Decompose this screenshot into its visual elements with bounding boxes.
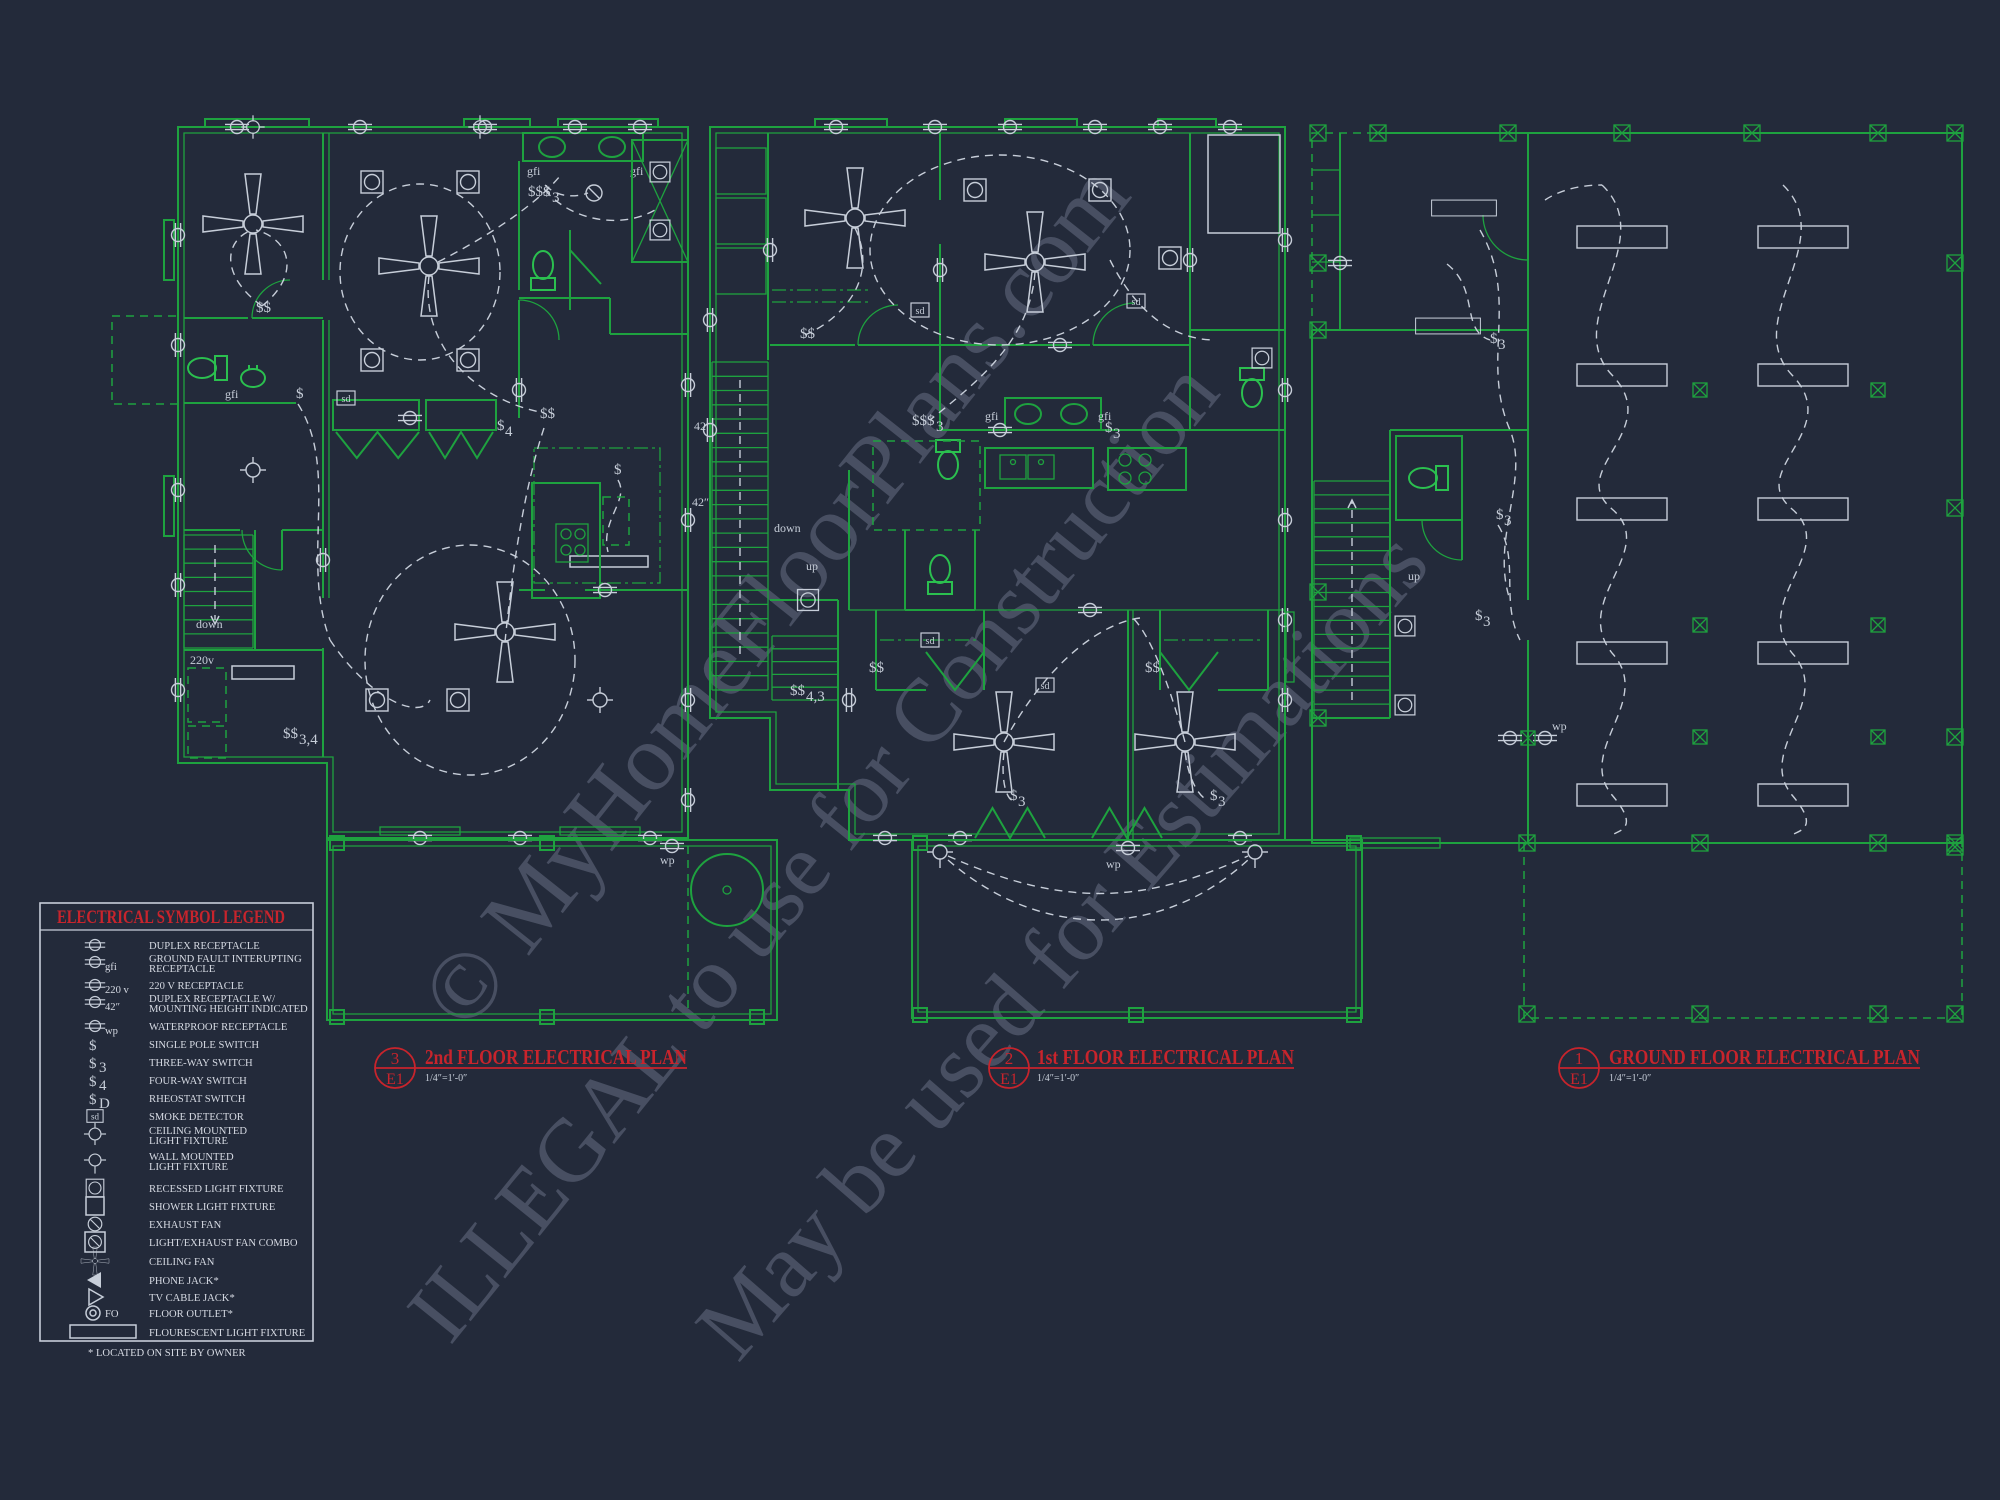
svg-text:E1: E1 <box>1570 1071 1588 1088</box>
svg-text:FLOURESCENT LIGHT FIXTURE: FLOURESCENT LIGHT FIXTURE <box>149 1328 305 1339</box>
svg-text:2nd FLOOR ELECTRICAL PLAN: 2nd FLOOR ELECTRICAL PLAN <box>425 1045 687 1069</box>
svg-text:LIGHT FIXTURE: LIGHT FIXTURE <box>149 1162 228 1173</box>
svg-text:$: $ <box>614 462 622 478</box>
svg-text:wp: wp <box>1552 719 1567 733</box>
svg-text:$: $ <box>89 1092 97 1108</box>
svg-text:E1: E1 <box>386 1071 404 1088</box>
svg-text:1/4″=1′-0″: 1/4″=1′-0″ <box>425 1073 467 1084</box>
svg-text:$: $ <box>89 1056 97 1072</box>
svg-text:$: $ <box>1496 507 1504 523</box>
svg-text:3: 3 <box>99 1060 107 1076</box>
svg-text:220 v: 220 v <box>105 985 130 996</box>
svg-text:CEILING FAN: CEILING FAN <box>149 1257 215 1268</box>
svg-text:$$: $$ <box>1145 660 1161 676</box>
svg-text:3: 3 <box>1483 614 1491 630</box>
svg-text:$$: $$ <box>869 660 885 676</box>
svg-text:down: down <box>196 617 223 631</box>
svg-text:1/4″=1′-0″: 1/4″=1′-0″ <box>1609 1073 1651 1084</box>
svg-text:MOUNTING HEIGHT INDICATED: MOUNTING HEIGHT INDICATED <box>149 1004 308 1015</box>
svg-text:WATERPROOF RECEPTACLE: WATERPROOF RECEPTACLE <box>149 1022 287 1033</box>
svg-text:3: 3 <box>1113 426 1121 442</box>
svg-text:3: 3 <box>552 190 560 206</box>
svg-text:$: $ <box>497 418 505 434</box>
svg-text:2: 2 <box>1005 1049 1014 1068</box>
svg-text:wp: wp <box>105 1026 118 1037</box>
svg-text:ELECTRICAL SYMBOL LEGEND: ELECTRICAL SYMBOL LEGEND <box>57 907 285 928</box>
svg-text:$: $ <box>296 386 304 402</box>
svg-text:SINGLE POLE SWITCH: SINGLE POLE SWITCH <box>149 1040 259 1051</box>
svg-text:TV CABLE JACK*: TV CABLE JACK* <box>149 1293 235 1304</box>
svg-text:$$$: $$$ <box>912 413 935 429</box>
svg-text:FOUR-WAY SWITCH: FOUR-WAY SWITCH <box>149 1076 247 1087</box>
svg-text:3: 3 <box>1498 337 1506 353</box>
svg-text:42″: 42″ <box>692 495 709 509</box>
svg-text:RECEPTACLE: RECEPTACLE <box>149 964 215 975</box>
svg-text:wp: wp <box>1106 857 1121 871</box>
svg-text:$$: $$ <box>790 683 806 699</box>
svg-text:3: 3 <box>1218 794 1226 810</box>
svg-text:42″: 42″ <box>105 1002 120 1013</box>
svg-text:PHONE JACK*: PHONE JACK* <box>149 1276 219 1287</box>
svg-text:* LOCATED ON SITE BY OWNER: * LOCATED ON SITE BY OWNER <box>88 1348 247 1359</box>
svg-text:$: $ <box>89 1074 97 1090</box>
svg-text:220v: 220v <box>190 653 214 667</box>
svg-text:FO: FO <box>105 1309 119 1320</box>
svg-text:1st FLOOR ELECTRICAL PLAN: 1st FLOOR ELECTRICAL PLAN <box>1037 1045 1294 1069</box>
svg-text:EXHAUST FAN: EXHAUST FAN <box>149 1220 222 1231</box>
svg-text:3: 3 <box>1018 794 1026 810</box>
svg-text:220 V RECEPTACLE: 220 V RECEPTACLE <box>149 981 244 992</box>
svg-text:3: 3 <box>391 1049 400 1068</box>
svg-text:1/4″=1′-0″: 1/4″=1′-0″ <box>1037 1073 1079 1084</box>
svg-text:GROUND FLOOR ELECTRICAL PLAN: GROUND FLOOR ELECTRICAL PLAN <box>1609 1045 1920 1069</box>
svg-text:$: $ <box>1475 608 1483 624</box>
svg-text:LIGHT/EXHAUST FAN COMBO: LIGHT/EXHAUST FAN COMBO <box>149 1238 298 1249</box>
svg-text:gfi: gfi <box>225 387 239 401</box>
svg-text:1: 1 <box>1575 1049 1584 1068</box>
svg-text:$$: $$ <box>283 726 299 742</box>
svg-text:3: 3 <box>936 419 944 435</box>
svg-text:THREE-WAY SWITCH: THREE-WAY SWITCH <box>149 1058 253 1069</box>
svg-text:4: 4 <box>505 424 513 440</box>
svg-text:FLOOR OUTLET*: FLOOR OUTLET* <box>149 1309 233 1320</box>
svg-text:$: $ <box>1210 788 1218 804</box>
svg-text:RHEOSTAT SWITCH: RHEOSTAT SWITCH <box>149 1094 246 1105</box>
svg-text:$: $ <box>89 1038 97 1054</box>
svg-text:RECESSED LIGHT FIXTURE: RECESSED LIGHT FIXTURE <box>149 1184 284 1195</box>
svg-text:E1: E1 <box>1000 1071 1018 1088</box>
svg-text:LIGHT FIXTURE: LIGHT FIXTURE <box>149 1136 228 1147</box>
svg-text:SHOWER LIGHT FIXTURE: SHOWER LIGHT FIXTURE <box>149 1202 275 1213</box>
svg-text:$: $ <box>1105 420 1113 436</box>
svg-text:3,4: 3,4 <box>299 732 318 748</box>
svg-text:up: up <box>806 559 818 573</box>
svg-text:DUPLEX RECEPTACLE: DUPLEX RECEPTACLE <box>149 941 260 952</box>
svg-text:$: $ <box>1490 331 1498 347</box>
svg-text:gfi: gfi <box>527 164 541 178</box>
svg-text:4: 4 <box>99 1078 107 1094</box>
svg-text:down: down <box>774 521 801 535</box>
svg-text:up: up <box>1408 569 1420 583</box>
svg-text:gfi: gfi <box>985 409 999 423</box>
svg-text:wp: wp <box>660 853 675 867</box>
svg-text:42″: 42″ <box>694 419 711 433</box>
svg-text:4,3: 4,3 <box>806 689 825 705</box>
svg-text:gfi: gfi <box>105 962 117 973</box>
svg-text:SMOKE DETECTOR: SMOKE DETECTOR <box>149 1112 245 1123</box>
svg-text:$: $ <box>1010 788 1018 804</box>
svg-text:$$: $$ <box>540 406 556 422</box>
svg-text:3: 3 <box>1504 513 1512 529</box>
